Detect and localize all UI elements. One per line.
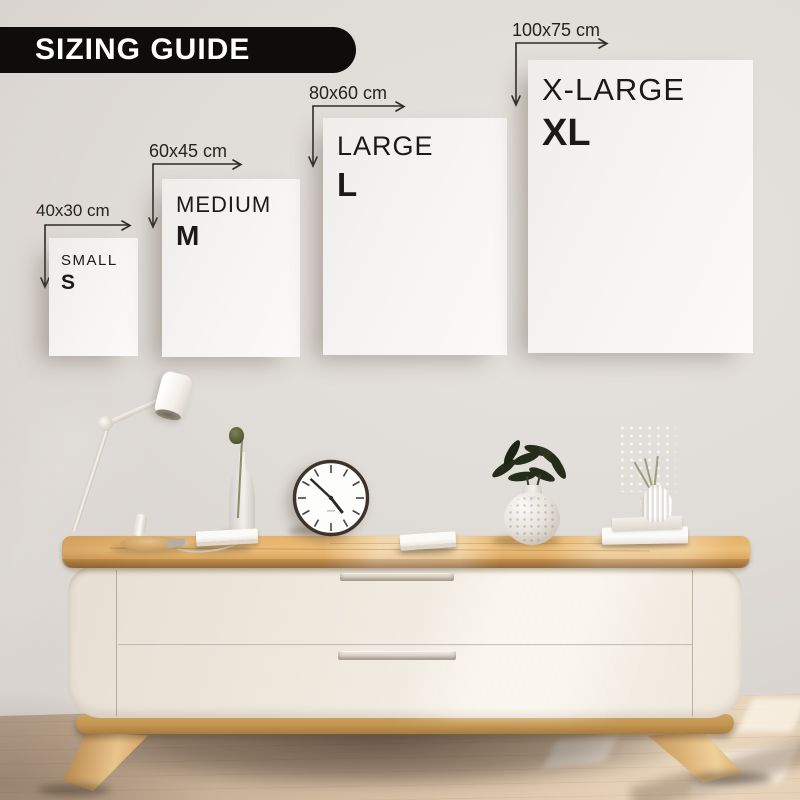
flower-bud [229, 427, 244, 444]
banner-title: SIZING GUIDE [35, 33, 250, 67]
dried-flower-spray [618, 424, 676, 492]
drawer-divider [118, 644, 692, 646]
frame-xlarge: X-LARGE XL [528, 60, 753, 353]
poster-xlarge: X-LARGE XL [528, 60, 753, 353]
frame-small: SMALL S [49, 238, 138, 356]
cabinet-seam-left [116, 570, 117, 716]
wood-grain-line [330, 543, 630, 544]
size-letter-large: L [337, 166, 357, 204]
lamp-elbow-joint [98, 416, 113, 431]
drawer-handle-upper [340, 573, 454, 581]
frame-large: LARGE L [323, 118, 507, 355]
frame-medium: MEDIUM M [162, 179, 300, 357]
textured-glass-vase [504, 492, 560, 545]
poster-large: LARGE L [323, 118, 507, 355]
size-letter-medium: M [176, 220, 199, 252]
size-name-small: SMALL [61, 252, 118, 269]
cabinet-seam-right [692, 570, 693, 716]
size-letter-xlarge: XL [542, 112, 591, 155]
sizing-guide-banner: SIZING GUIDE [0, 27, 356, 73]
sizing-guide-scene: SIZING GUIDE 40x30 cm SMALL S 60x45 cm M… [0, 0, 800, 800]
drawer-handle-lower [338, 651, 456, 660]
cabinet-shadow [90, 729, 672, 787]
dimension-label-xlarge: 100x75 cm [512, 20, 600, 41]
dimension-label-medium: 60x45 cm [149, 141, 227, 162]
dimension-label-small: 40x30 cm [36, 201, 110, 221]
size-name-large: LARGE [337, 131, 434, 162]
size-name-medium: MEDIUM [176, 192, 271, 218]
poster-medium: MEDIUM M [162, 179, 300, 357]
wall-clock [291, 458, 371, 538]
dimension-label-large: 80x60 cm [309, 83, 387, 104]
poster-small: SMALL S [49, 238, 138, 356]
size-letter-small: S [61, 271, 75, 295]
size-name-xlarge: X-LARGE [542, 72, 685, 108]
leg-shadow [38, 784, 110, 796]
leg-shadow [692, 772, 772, 785]
